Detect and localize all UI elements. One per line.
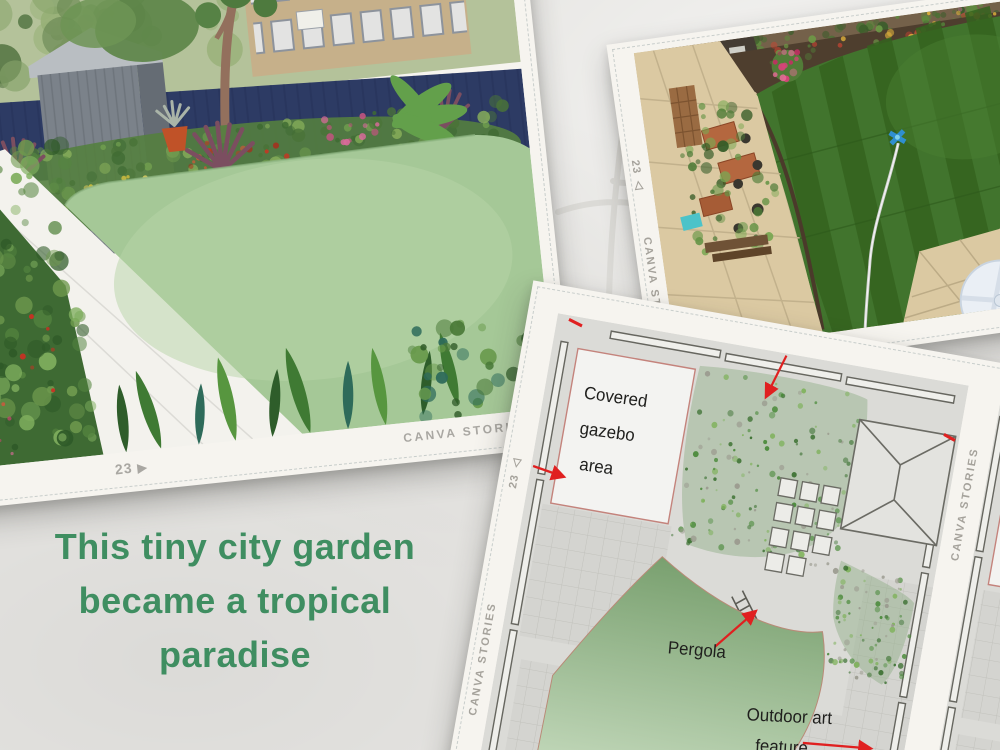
real-garden-photo bbox=[634, 1, 1000, 354]
frame-marker-play-icon: ▶ bbox=[137, 460, 149, 475]
plan-card: 23 △ CANVA STORIES bbox=[436, 280, 1000, 750]
headline-line2: became a tropical bbox=[15, 574, 455, 628]
basketball-hoop-icon bbox=[296, 9, 324, 30]
photo-card-garden-render: CNVFILLM FF1 bbox=[0, 0, 577, 512]
garden-render-photo bbox=[0, 0, 557, 470]
frame-marker-triangle-icon: △ bbox=[510, 455, 524, 471]
frame-marker-triangle-icon: △ bbox=[631, 177, 645, 193]
frame-number: 23 △ bbox=[506, 455, 524, 489]
headline-line3: paradise bbox=[15, 628, 455, 682]
art-label-line2: feature bbox=[755, 735, 809, 750]
story-canvas: CNVFILLM FF1 bbox=[0, 0, 1000, 750]
frame-number: 23 △ bbox=[629, 159, 646, 193]
art-label-line1: Outdoor art bbox=[746, 704, 833, 728]
headline-line1: This tiny city garden bbox=[15, 520, 455, 574]
headline: This tiny city garden became a tropical … bbox=[15, 520, 455, 682]
frame-number: 23 ▶ bbox=[114, 458, 148, 477]
gazebo-roof-plan bbox=[841, 420, 956, 546]
